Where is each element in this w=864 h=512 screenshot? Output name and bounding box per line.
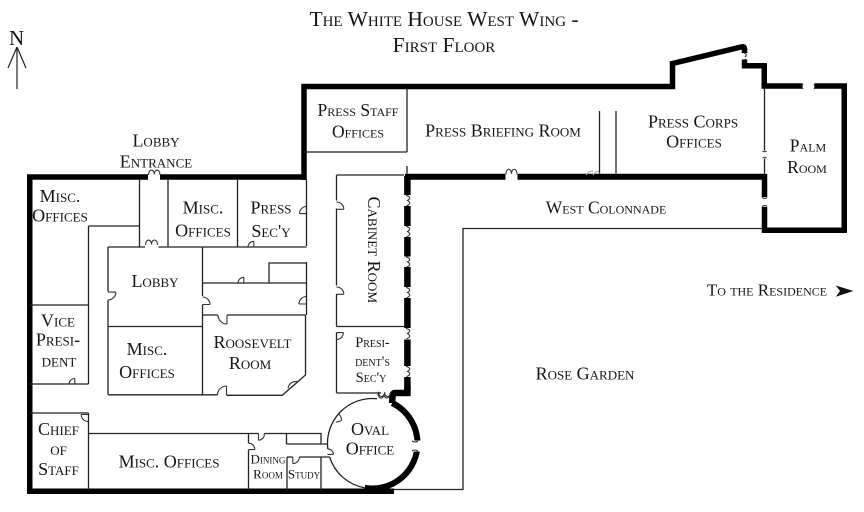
svg-text:Dining: Dining xyxy=(251,452,286,467)
svg-text:To the Residence: To the Residence xyxy=(707,281,827,300)
svg-text:Misc.: Misc. xyxy=(127,339,168,359)
svg-text:West Colonnade: West Colonnade xyxy=(546,198,667,218)
svg-text:Entrance: Entrance xyxy=(120,152,192,172)
svg-text:Presi-: Presi- xyxy=(36,330,80,350)
svg-text:Rose Garden: Rose Garden xyxy=(536,364,635,384)
svg-text:Staff: Staff xyxy=(38,459,79,479)
svg-text:Press: Press xyxy=(250,198,291,218)
svg-text:Roosevelt: Roosevelt xyxy=(214,332,292,352)
svg-text:Oval: Oval xyxy=(351,419,389,439)
svg-text:The White House West Wing -: The White House West Wing - xyxy=(309,7,578,31)
svg-text:Lobby: Lobby xyxy=(132,131,180,151)
svg-text:Misc.: Misc. xyxy=(183,198,224,218)
svg-text:Chief: Chief xyxy=(38,419,79,439)
svg-text:Offices: Offices xyxy=(332,122,384,142)
svg-text:Offices: Offices xyxy=(175,221,231,241)
svg-text:Press Corps: Press Corps xyxy=(648,112,738,132)
svg-text:Presi-: Presi- xyxy=(355,335,390,351)
svg-text:First Floor: First Floor xyxy=(393,33,496,57)
svg-text:Room: Room xyxy=(787,157,827,177)
svg-text:Sec'y: Sec'y xyxy=(356,370,387,386)
svg-text:dent: dent xyxy=(42,351,77,371)
svg-text:Misc. Offices: Misc. Offices xyxy=(119,452,220,472)
svg-text:N: N xyxy=(9,26,24,50)
svg-text:Cabinet Room: Cabinet Room xyxy=(364,197,384,304)
svg-text:Offices: Offices xyxy=(119,362,175,382)
svg-text:Offices: Offices xyxy=(32,206,88,226)
svg-text:Offices: Offices xyxy=(666,132,722,152)
svg-text:Room: Room xyxy=(253,467,283,482)
svg-text:Sec'y: Sec'y xyxy=(251,221,291,241)
svg-text:Press Staff: Press Staff xyxy=(318,100,399,120)
svg-text:Misc.: Misc. xyxy=(40,186,81,206)
svg-text:Office: Office xyxy=(346,439,394,459)
svg-text:Palm: Palm xyxy=(790,136,827,156)
svg-text:Press Briefing Room: Press Briefing Room xyxy=(425,121,581,141)
svg-text:Study: Study xyxy=(288,467,321,482)
svg-text:Room: Room xyxy=(229,353,272,373)
svg-text:of: of xyxy=(50,439,67,459)
svg-text:Lobby: Lobby xyxy=(131,271,179,291)
svg-text:dent's: dent's xyxy=(355,354,390,370)
svg-text:Vice: Vice xyxy=(41,311,75,331)
